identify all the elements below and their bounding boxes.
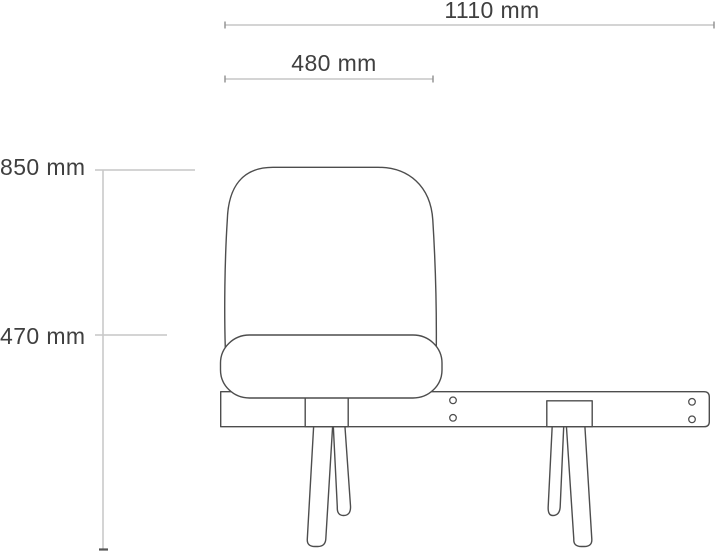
- screw-hole: [689, 416, 696, 423]
- left-front-leg: [307, 420, 333, 547]
- right-back-leg: [548, 420, 564, 516]
- screw-hole: [689, 399, 696, 406]
- technical-drawing-canvas: 1110 mm 480 mm 850 mm 470 mm: [0, 0, 716, 553]
- dimension-line-heights: [95, 170, 195, 550]
- seat-cushion: [221, 335, 443, 398]
- left-back-leg: [333, 420, 351, 516]
- dimension-label-overall-width: 1110 mm: [436, 0, 548, 22]
- bench-chair-drawing: [0, 0, 716, 553]
- dimension-line-seat-width: [225, 76, 433, 83]
- backrest: [225, 167, 437, 352]
- dimension-label-overall-height: 850 mm: [0, 155, 84, 179]
- screw-hole: [450, 415, 457, 422]
- dimension-label-seat-width: 480 mm: [278, 51, 390, 75]
- right-front-leg: [566, 420, 592, 547]
- mounting-bracket-left: [305, 398, 348, 427]
- mounting-bracket-right: [547, 401, 592, 427]
- dimension-label-seat-height: 470 mm: [0, 324, 84, 348]
- screw-hole: [450, 397, 457, 404]
